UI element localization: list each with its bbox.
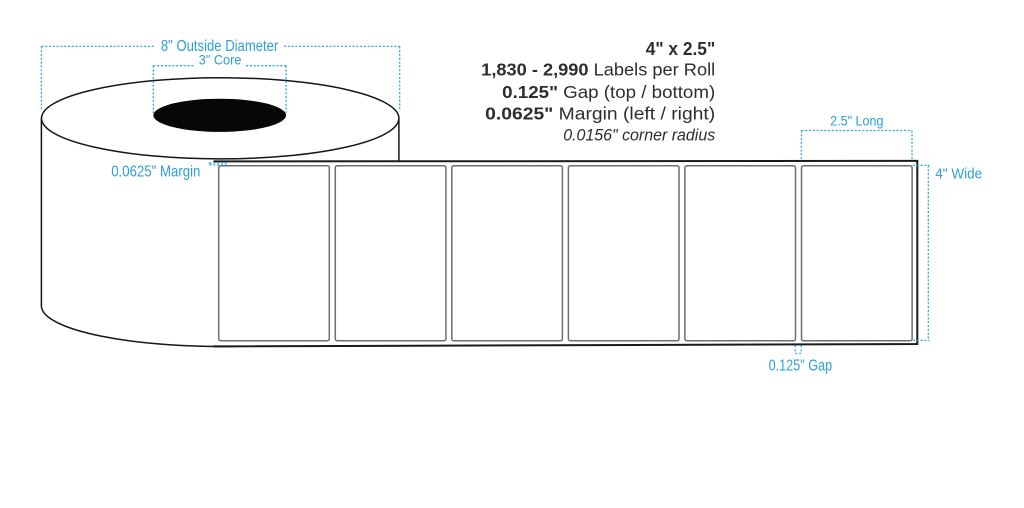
svg-text:0.125" Gap (top / bottom): 0.125" Gap (top / bottom): [502, 82, 715, 102]
svg-text:0.0625" Margin (left / right): 0.0625" Margin (left / right): [485, 104, 715, 124]
svg-text:4" x 2.5": 4" x 2.5": [646, 39, 716, 59]
svg-text:0.0625" Margin: 0.0625" Margin: [111, 164, 200, 181]
svg-text:4" Wide: 4" Wide: [935, 167, 982, 183]
svg-text:2.5" Long: 2.5" Long: [830, 113, 883, 129]
svg-text:3" Core: 3" Core: [199, 52, 242, 67]
svg-text:0.0156" corner radius: 0.0156" corner radius: [563, 125, 716, 144]
svg-text:0.125" Gap: 0.125" Gap: [769, 358, 833, 375]
svg-text:1,830 - 2,990 Labels per Roll: 1,830 - 2,990 Labels per Roll: [481, 60, 715, 80]
